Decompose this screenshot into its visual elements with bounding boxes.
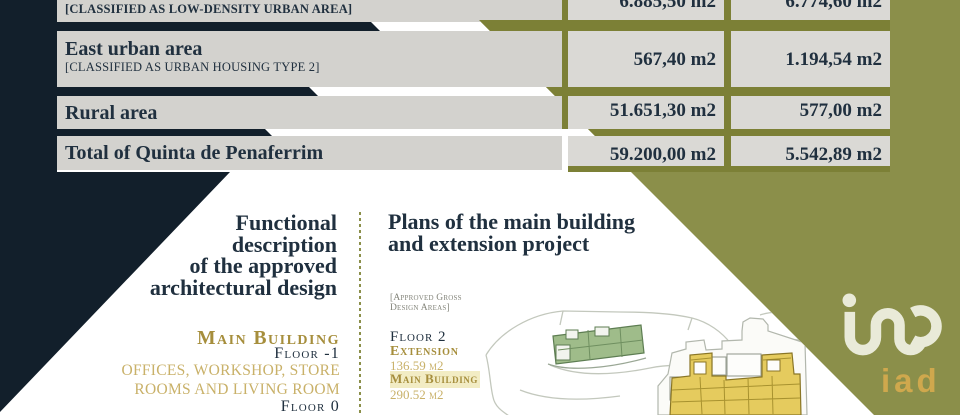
svg-text:iad: iad	[881, 362, 941, 399]
